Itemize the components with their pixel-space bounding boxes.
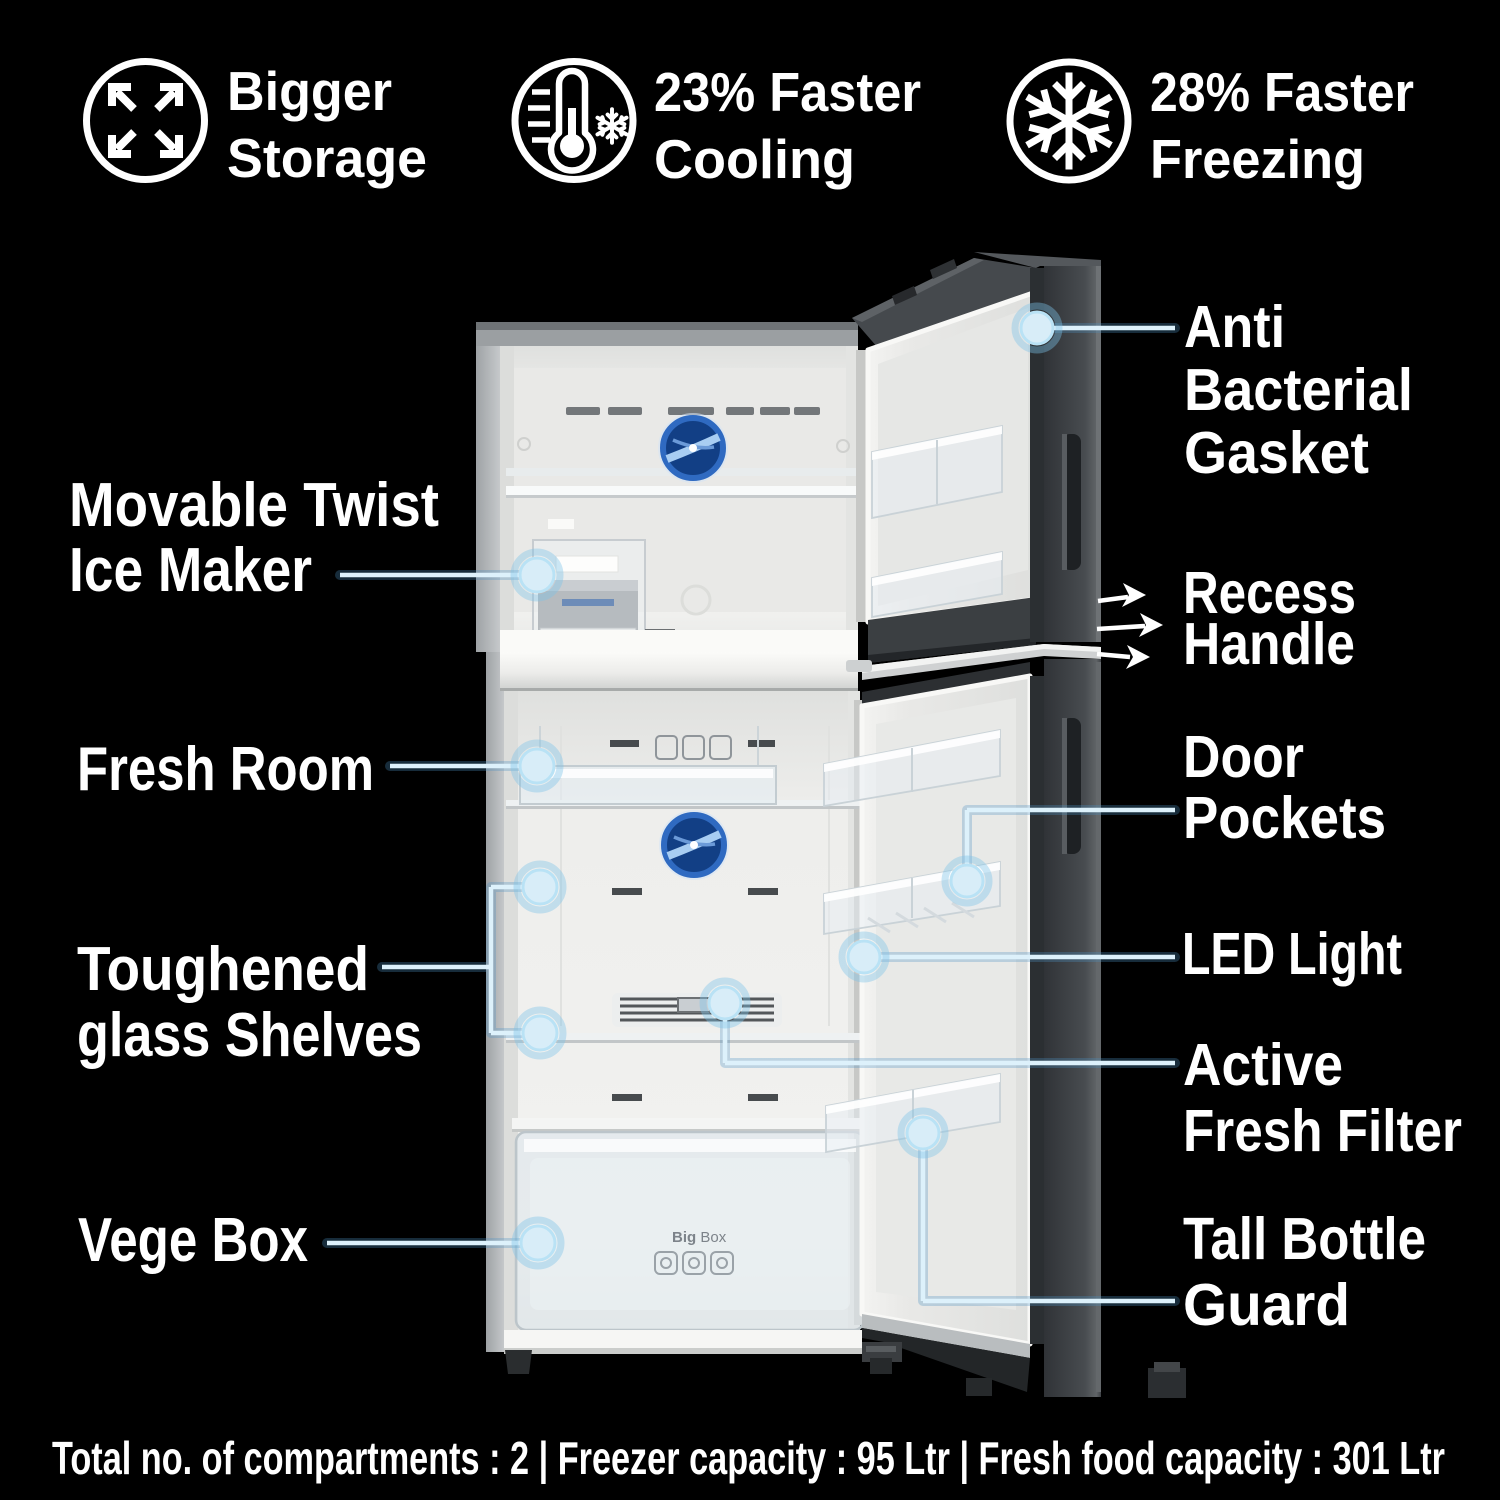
svg-text:Big Box: Big Box [672,1229,727,1246]
